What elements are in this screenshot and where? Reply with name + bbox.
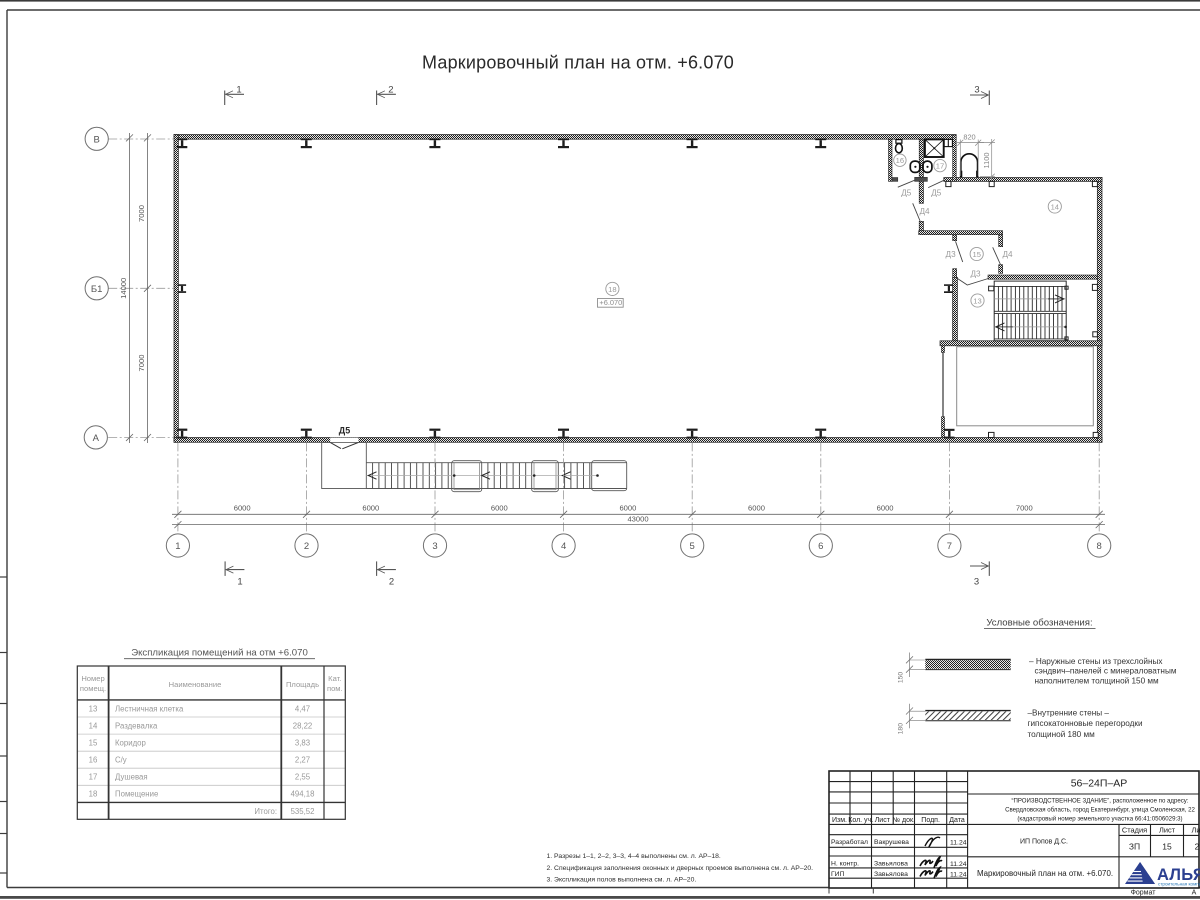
svg-text:Изм.: Изм.: [832, 817, 847, 824]
svg-text:14: 14: [1051, 203, 1059, 212]
svg-text:А: А: [93, 433, 100, 444]
svg-text:толщиной 180 мм: толщиной 180 мм: [1028, 730, 1096, 739]
svg-text:535,52: 535,52: [291, 807, 315, 816]
svg-text:Д5: Д5: [339, 426, 350, 436]
svg-text:11.24: 11.24: [950, 861, 967, 868]
svg-text:+6.070: +6.070: [599, 298, 622, 307]
svg-text:Лист: Лист: [875, 817, 891, 824]
svg-text:строительная компания: строительная компания: [1158, 882, 1200, 887]
svg-text:14: 14: [89, 721, 98, 730]
svg-text:Номер: Номер: [81, 674, 104, 683]
svg-text:17: 17: [936, 162, 944, 171]
svg-text:15: 15: [1162, 842, 1172, 852]
svg-text:Д5: Д5: [901, 188, 912, 197]
svg-text:Экспликация помещений на отм +: Экспликация помещений на отм +6.070: [131, 648, 308, 659]
svg-text:ИП Попов Д.С.: ИП Попов Д.С.: [1020, 839, 1068, 846]
svg-text:1. Разрезы 1–1, 2–2, 3–3, 4–4: 1. Разрезы 1–1, 2–2, 3–3, 4–4 выполнены …: [547, 853, 721, 860]
svg-text:15: 15: [89, 739, 98, 748]
svg-text:Д4: Д4: [1002, 250, 1013, 259]
svg-text:гипсокатонновые перегородки: гипсокатонновые перегородки: [1028, 719, 1143, 728]
svg-text:Маркировочный план на отм. +6.: Маркировочный план на отм. +6.070.: [977, 869, 1113, 878]
svg-text:С/у: С/у: [115, 756, 127, 765]
svg-text:6000: 6000: [362, 504, 379, 513]
svg-text:Раздевалка: Раздевалка: [115, 721, 158, 730]
svg-text:Формат: Формат: [1131, 890, 1157, 897]
svg-text:Коридор: Коридор: [115, 739, 146, 748]
svg-text:18: 18: [608, 285, 616, 294]
svg-text:7000: 7000: [137, 355, 146, 372]
svg-text:820: 820: [963, 133, 975, 142]
svg-text:Маркировочный план на отм. +6.: Маркировочный план на отм. +6.070: [422, 53, 734, 73]
svg-text:7000: 7000: [1016, 504, 1033, 513]
svg-text:6000: 6000: [748, 504, 765, 513]
svg-text:Завьялова: Завьялова: [874, 861, 908, 868]
svg-text:6: 6: [818, 541, 823, 552]
svg-text:180: 180: [898, 723, 905, 735]
svg-text:1: 1: [175, 541, 180, 552]
svg-text:43000: 43000: [627, 514, 648, 523]
svg-text:11.24: 11.24: [950, 840, 967, 847]
svg-text:Ли: Ли: [1192, 826, 1200, 835]
svg-text:Стадия: Стадия: [1122, 826, 1147, 835]
svg-text:6000: 6000: [877, 504, 894, 513]
svg-text:Итого:: Итого:: [254, 807, 277, 816]
svg-text:28,22: 28,22: [293, 721, 313, 730]
svg-text:Д3: Д3: [946, 250, 957, 259]
svg-text:Вакрушева: Вакрушева: [874, 839, 909, 846]
svg-text:13: 13: [89, 704, 98, 713]
svg-text:Д4: Д4: [919, 207, 930, 216]
svg-text:6000: 6000: [491, 504, 508, 513]
svg-text:ГИП: ГИП: [831, 871, 845, 878]
svg-text:В: В: [94, 134, 100, 145]
svg-text:17: 17: [89, 773, 98, 782]
svg-text:Н. контр.: Н. контр.: [831, 861, 859, 868]
svg-text:Разработал: Разработал: [831, 838, 868, 846]
svg-text:7: 7: [947, 541, 952, 552]
svg-text:6000: 6000: [619, 504, 636, 513]
svg-text:– Наружные стены из трехслойны: – Наружные стены из трехслойных: [1029, 657, 1163, 666]
svg-text:№ док.: № док.: [893, 817, 915, 824]
svg-text:3,83: 3,83: [295, 739, 310, 748]
svg-text:16: 16: [896, 156, 904, 165]
svg-text:18: 18: [89, 790, 98, 799]
svg-text:150: 150: [898, 672, 905, 684]
svg-text:15: 15: [972, 250, 980, 259]
svg-text:пом.: пом.: [327, 684, 343, 693]
svg-text:А: А: [1192, 890, 1197, 897]
svg-text:1: 1: [236, 84, 241, 95]
svg-text:2: 2: [388, 84, 393, 95]
svg-text:2: 2: [1195, 842, 1200, 852]
svg-text:494,18: 494,18: [291, 790, 315, 799]
svg-text:Лист: Лист: [1159, 826, 1176, 835]
svg-text:сэндвич–панелей с минераловатн: сэндвич–панелей с минераловатным: [1035, 667, 1177, 676]
svg-text:Д3: Д3: [970, 269, 981, 278]
svg-text:8: 8: [1097, 541, 1102, 552]
svg-text:Помещение: Помещение: [115, 790, 158, 799]
svg-text:Условные обозначения:: Условные обозначения:: [986, 618, 1092, 629]
svg-text:11.24: 11.24: [950, 872, 967, 879]
svg-text:3: 3: [432, 541, 437, 552]
svg-text:5: 5: [690, 541, 695, 552]
svg-text:3: 3: [974, 85, 979, 96]
svg-text:3: 3: [974, 576, 979, 587]
svg-text:(кадастровый номер земельного: (кадастровый номер земельного участка 66…: [1017, 816, 1182, 823]
svg-text:14000: 14000: [119, 278, 128, 299]
svg-text:Д5: Д5: [931, 188, 942, 197]
svg-text:4,47: 4,47: [295, 704, 310, 713]
svg-text:2: 2: [389, 576, 394, 587]
svg-text:1: 1: [237, 576, 242, 587]
svg-text:Кол. уч.: Кол. уч.: [848, 817, 873, 824]
svg-text:3. Экспликация полов выполнена: 3. Экспликация полов выполнена см. л. АР…: [547, 877, 697, 884]
svg-text:6000: 6000: [234, 504, 251, 513]
svg-text:наполнителем толщиной 150 мм: наполнителем толщиной 150 мм: [1035, 676, 1160, 685]
svg-text:56–24П–АР: 56–24П–АР: [1071, 778, 1128, 790]
svg-text:Свердловская область, город Ек: Свердловская область, город Екатеринбург…: [1005, 807, 1195, 814]
svg-text:–Внутренние стены –: –Внутренние стены –: [1028, 709, 1110, 718]
svg-text:2,27: 2,27: [295, 756, 310, 765]
svg-text:2. Спецификация заполнения око: 2. Спецификация заполнения оконных и две…: [547, 865, 814, 872]
svg-text:Подп.: Подп.: [921, 817, 940, 824]
svg-text:1100: 1100: [982, 153, 991, 169]
svg-text:Наименование: Наименование: [169, 680, 222, 689]
svg-text:Б1: Б1: [91, 284, 103, 295]
svg-text:Лестничная клетка: Лестничная клетка: [115, 704, 184, 713]
svg-text:Дата: Дата: [949, 817, 965, 824]
svg-text:Завьялова: Завьялова: [874, 871, 908, 878]
svg-text:Площадь: Площадь: [286, 680, 319, 689]
svg-text:7000: 7000: [137, 205, 146, 222]
svg-text:13: 13: [973, 297, 981, 306]
svg-text:“ПРОИЗВОДСТВЕННОЕ ЗДАНИЕ”, рас: “ПРОИЗВОДСТВЕННОЕ ЗДАНИЕ”, расположенное…: [1011, 798, 1188, 805]
svg-text:Душевая: Душевая: [115, 773, 148, 782]
svg-text:помещ.: помещ.: [80, 684, 106, 693]
svg-text:Кат.: Кат.: [328, 674, 341, 683]
svg-text:2,55: 2,55: [295, 773, 311, 782]
svg-text:2: 2: [304, 541, 309, 552]
svg-text:16: 16: [89, 756, 98, 765]
svg-text:ЗП: ЗП: [1129, 842, 1140, 852]
svg-text:4: 4: [561, 541, 566, 552]
